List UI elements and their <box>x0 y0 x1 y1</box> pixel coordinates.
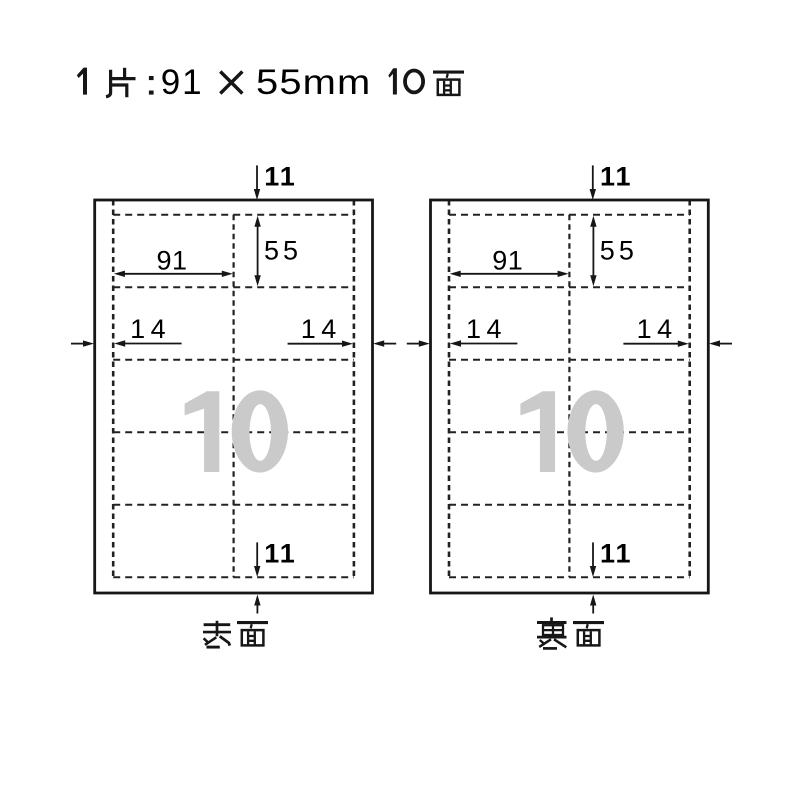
svg-text:91: 91 <box>161 63 204 102</box>
svg-text:55mm: 55mm <box>256 62 371 101</box>
